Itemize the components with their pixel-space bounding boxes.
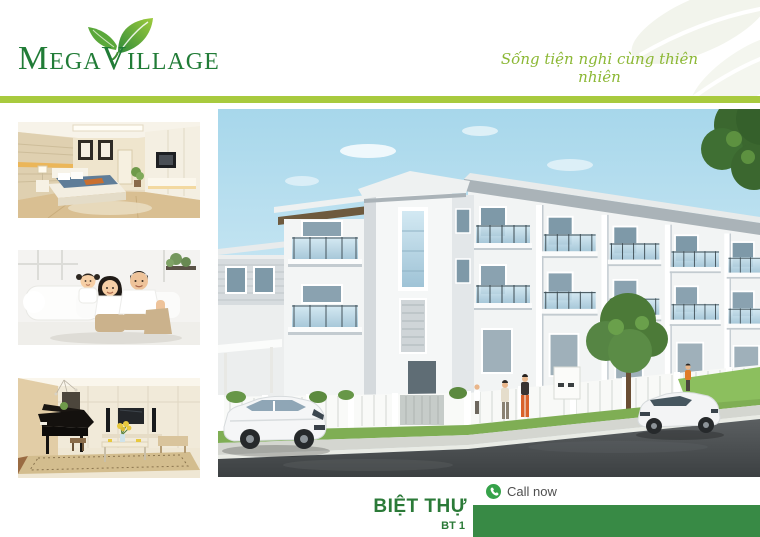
gallery-thumbnail-bedroom[interactable]: [18, 122, 200, 218]
header-divider: [0, 96, 760, 103]
happy-family-photo: [18, 250, 200, 345]
gallery-thumbnail-living-room[interactable]: [18, 378, 200, 478]
villa-street-render: [218, 109, 760, 477]
project-title-block: BIỆT THỰ BT 1: [373, 497, 467, 532]
project-title: BIỆT THỰ: [373, 497, 467, 518]
gallery-thumbnail-family[interactable]: [18, 250, 200, 345]
living-room-piano-photo: [18, 378, 200, 478]
footer-green-bar: [473, 505, 760, 537]
phone-icon: [486, 484, 501, 499]
call-now-label: Call now: [507, 484, 557, 499]
brand-logo[interactable]: MegaVillage: [18, 10, 228, 88]
hero-image: [218, 109, 760, 477]
logo-text: MegaVillage: [18, 42, 220, 76]
project-subtitle: BT 1: [373, 520, 467, 532]
page: MegaVillage Sống tiện nghi cùng thiên nh…: [0, 0, 760, 537]
brand-header: MegaVillage Sống tiện nghi cùng thiên nh…: [0, 0, 760, 97]
bedroom-interior-photo: [18, 122, 200, 218]
call-now-button[interactable]: Call now: [486, 484, 557, 499]
brand-tagline: Sống tiện nghi cùng thiên nhiên: [492, 50, 707, 86]
